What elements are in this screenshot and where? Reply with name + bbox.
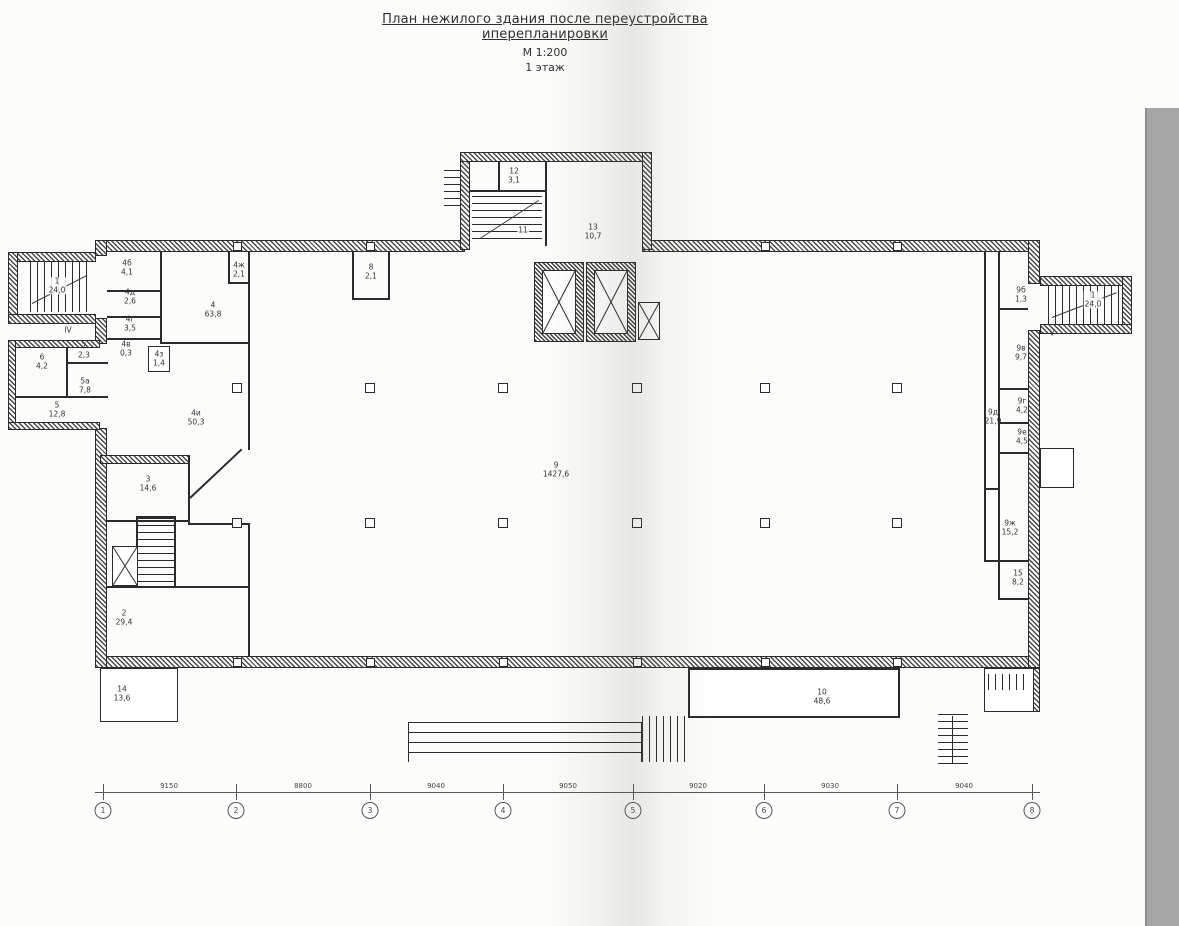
wall-segment (8, 314, 96, 324)
room-label: 9е4,5 (1016, 428, 1028, 445)
room-label: 124,0 (48, 277, 67, 294)
entrance-steps-wide (408, 722, 642, 762)
partition (248, 342, 250, 450)
stair-mark: V (1049, 330, 1054, 339)
room-label: 72,3 (78, 342, 90, 359)
partition (352, 252, 354, 300)
room-label: 11 (517, 227, 529, 236)
room-label: 4б4,1 (121, 259, 133, 276)
axis-tick (897, 784, 898, 800)
stair-mark: IV (64, 327, 71, 336)
partition (248, 252, 250, 344)
wall-segment (1040, 276, 1132, 286)
stair-treads-inner (138, 518, 174, 586)
dimension-value: 8800 (294, 782, 312, 790)
wall-segment (95, 240, 107, 256)
basement-steps (938, 714, 968, 766)
wall-column (499, 658, 508, 667)
axis-marker: 5 (625, 802, 642, 819)
axis-marker: 2 (228, 802, 245, 819)
partition (160, 342, 250, 344)
wall-segment (460, 152, 470, 250)
partition (228, 252, 230, 284)
exterior-steps-top (444, 170, 460, 206)
axis-tick (633, 784, 634, 800)
right-bay (1040, 448, 1074, 488)
elevator-shaft (534, 262, 584, 342)
dimension-value: 9020 (689, 782, 707, 790)
partition (984, 252, 986, 490)
axis-tick (236, 784, 237, 800)
drawing-floor: 1 этаж (330, 61, 760, 74)
wall-column (366, 658, 375, 667)
dimension-value: 9040 (955, 782, 973, 790)
axis-marker: 1 (95, 802, 112, 819)
room-label: 9б1,3 (1015, 286, 1027, 303)
partition (160, 252, 162, 344)
wall-column (233, 242, 242, 251)
wall-column (233, 658, 242, 667)
room-label: 124,0 (1084, 291, 1103, 308)
porch-steps (988, 674, 1028, 690)
room-label: 9г4,2 (1016, 397, 1028, 414)
axis-marker: 4 (495, 802, 512, 819)
room-label: 1310,7 (585, 223, 602, 240)
column (232, 383, 242, 393)
room-label: 4ж2,1 (233, 261, 245, 278)
diagonal-wall (189, 449, 242, 499)
room-label: 229,4 (116, 609, 133, 626)
column (498, 518, 508, 528)
axis-marker: 6 (756, 802, 773, 819)
partition (388, 252, 390, 300)
wall-segment (642, 240, 1040, 252)
dimension-value: 9050 (559, 782, 577, 790)
column (632, 383, 642, 393)
column (498, 383, 508, 393)
duct-shaft (638, 302, 660, 340)
partition (107, 338, 162, 340)
axis-marker: 7 (889, 802, 906, 819)
wall-segment (460, 152, 652, 162)
wall-segment (8, 422, 100, 430)
wall-segment (95, 428, 107, 668)
floor-plan-page: План нежилого здания после переустройств… (0, 0, 1179, 926)
dimension-value: 9030 (821, 782, 839, 790)
elevator-shaft (586, 262, 636, 342)
room-label: 4з1,4 (153, 350, 165, 367)
axis-marker: 8 (1024, 802, 1041, 819)
partition (998, 598, 1028, 600)
partition (66, 348, 68, 398)
wall-segment (1028, 240, 1040, 284)
column (892, 518, 902, 528)
room-label: 4в0,3 (120, 340, 132, 357)
entrance-steps (642, 716, 686, 762)
room-label: 9д21,9 (985, 408, 1002, 425)
room-label: 463,8 (205, 301, 222, 318)
column (892, 383, 902, 393)
elevator-cab-symbol (542, 270, 576, 334)
partition (188, 455, 190, 525)
room-label: 1413,6 (114, 685, 131, 702)
partition (66, 362, 108, 364)
partition (998, 388, 1028, 390)
axis-tick (503, 784, 504, 800)
partition (352, 298, 390, 300)
column (760, 518, 770, 528)
scanner-edge-strip (1145, 108, 1179, 926)
wall-segment (642, 152, 652, 250)
wall-segment (8, 252, 96, 262)
wall-segment (1028, 330, 1040, 668)
wall-column (761, 242, 770, 251)
room-label: 512,8 (49, 401, 66, 418)
wall-column (893, 658, 902, 667)
room-label: 1048,6 (814, 688, 831, 705)
partition (998, 308, 1028, 310)
column (365, 383, 375, 393)
axis-tick (1032, 784, 1033, 800)
room-label: 9ж15,2 (1002, 519, 1019, 536)
room-label: 82,1 (365, 263, 377, 280)
wall-column (366, 242, 375, 251)
partition (998, 252, 1000, 600)
room-14-annex (100, 668, 178, 722)
room-label: 314,6 (140, 475, 157, 492)
column (760, 383, 770, 393)
room-label: 5а7,8 (79, 377, 91, 394)
partition (107, 586, 248, 588)
partition (545, 162, 547, 246)
room-label: 4г3,5 (124, 315, 136, 332)
wall-segment (8, 340, 16, 430)
small-lift-shaft (112, 546, 138, 586)
partition (228, 282, 250, 284)
partition (498, 162, 500, 192)
partition (470, 190, 547, 192)
drawing-scale: М 1:200 (330, 46, 760, 59)
room-10-annex (688, 668, 900, 718)
partition (248, 523, 250, 656)
partition (984, 488, 1000, 490)
room-label: 4д2,6 (124, 288, 136, 305)
dimension-value: 9150 (160, 782, 178, 790)
column (232, 518, 242, 528)
partition (984, 488, 986, 562)
elevator-cab-symbol (594, 270, 628, 334)
room-label: 158,2 (1012, 569, 1024, 586)
drawing-title: План нежилого здания после переустройств… (330, 12, 760, 42)
wall-column (633, 658, 642, 667)
room-label: 64,2 (36, 353, 48, 370)
room-label-main-hall: 91427,6 (543, 461, 569, 478)
room-label: 9в9,7 (1015, 344, 1027, 361)
wall-column (893, 242, 902, 251)
room-label: 4и50,3 (188, 409, 205, 426)
partition (984, 560, 1028, 562)
axis-tick (370, 784, 371, 800)
room-label: 123,1 (508, 167, 520, 184)
axis-tick (103, 784, 104, 800)
axis-marker: 3 (362, 802, 379, 819)
partition (16, 396, 108, 398)
dimension-value: 9040 (427, 782, 445, 790)
axis-tick (764, 784, 765, 800)
drawing-title-block: План нежилого здания после переустройств… (330, 12, 760, 74)
column (365, 518, 375, 528)
wall-segment (95, 240, 465, 252)
partition (998, 452, 1028, 454)
column (632, 518, 642, 528)
partition (174, 516, 176, 588)
wall-column (761, 658, 770, 667)
partition (998, 422, 1028, 424)
stair-arrow (952, 716, 953, 764)
wall-segment (100, 455, 190, 464)
